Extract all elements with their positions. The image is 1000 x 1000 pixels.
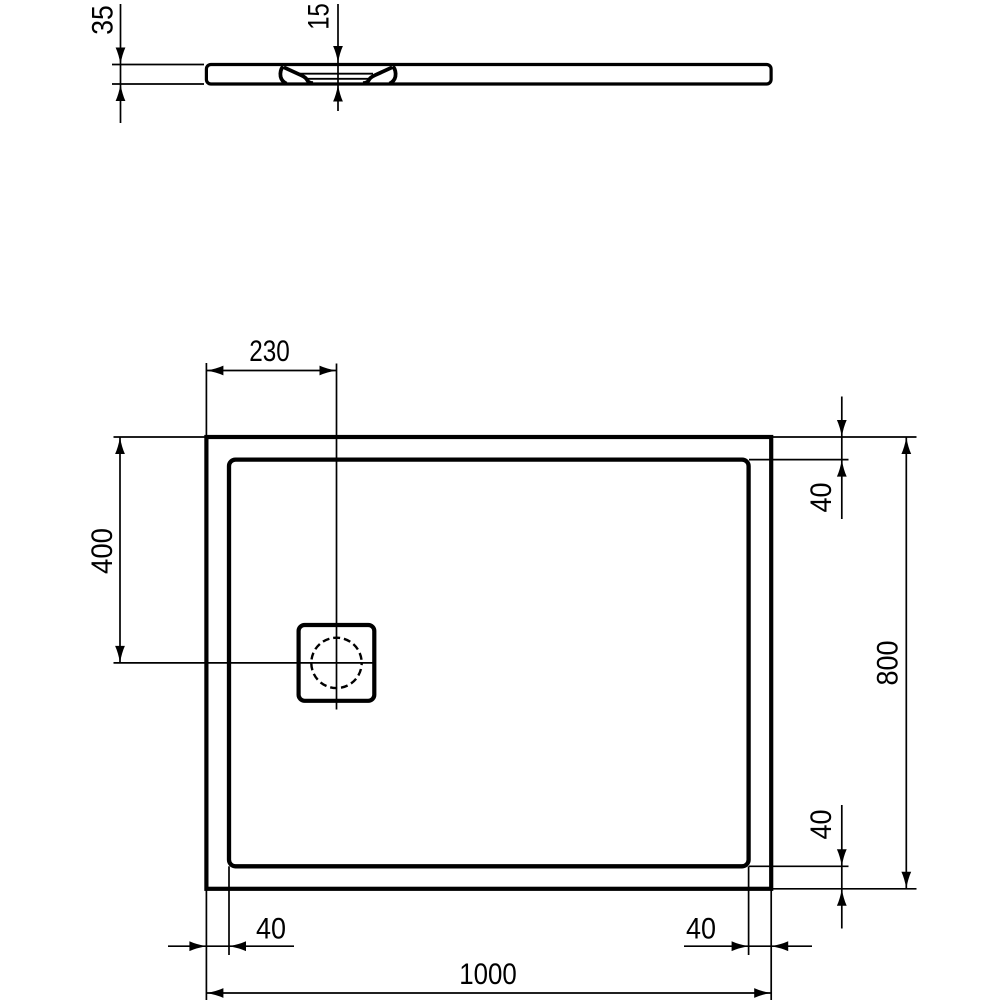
svg-text:1000: 1000 (459, 958, 517, 991)
svg-text:400: 400 (86, 528, 119, 574)
svg-text:40: 40 (686, 913, 716, 946)
svg-text:800: 800 (872, 641, 905, 686)
svg-text:40: 40 (256, 913, 286, 946)
svg-text:230: 230 (249, 335, 290, 368)
svg-text:40: 40 (805, 483, 838, 513)
svg-text:15: 15 (303, 3, 336, 30)
svg-text:40: 40 (805, 810, 838, 840)
svg-text:35: 35 (87, 5, 120, 35)
